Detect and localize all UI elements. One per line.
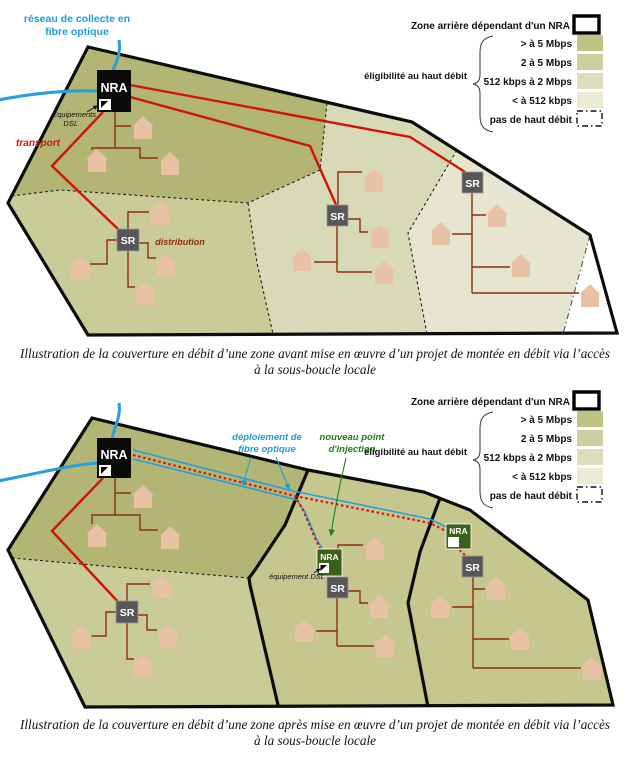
legend-swatch-lt512 <box>577 92 603 108</box>
svg-text:Zone arrière dépendant d'un NR: Zone arrière dépendant d'un NRA <box>411 397 570 408</box>
svg-text:NRA: NRA <box>449 526 467 536</box>
legend2-zone-icon <box>574 392 599 409</box>
d1-sr1-box: SR <box>117 229 139 251</box>
d2-nra-green-2: NRA <box>446 524 471 549</box>
svg-text:SR: SR <box>465 562 480 574</box>
d2-nra-box: NRA <box>97 438 131 478</box>
d2-sr2-box: SR <box>327 577 348 598</box>
d2-fiber-deploy-label: déploiement de <box>232 432 302 443</box>
legend-zone-label: Zone arrière dépendant d'un NRA <box>411 21 570 32</box>
d1-distribution-label: distribution <box>155 237 205 247</box>
d2-sr1-box: SR <box>116 601 138 623</box>
svg-text:< à 512 kbps: < à 512 kbps <box>512 472 572 483</box>
svg-text:SR: SR <box>465 178 480 190</box>
d2-zone-nra-lower <box>12 558 278 707</box>
svg-text:SR: SR <box>120 607 135 619</box>
svg-text:< à 512 kbps: < à 512 kbps <box>512 96 572 107</box>
d1-fiber-collect-label: réseau de collecte en <box>24 13 130 25</box>
svg-text:> à 5 Mbps: > à 5 Mbps <box>521 39 573 50</box>
svg-text:fibre optique: fibre optique <box>238 444 296 455</box>
svg-text:2 à 5 Mbps: 2 à 5 Mbps <box>521 58 573 69</box>
svg-text:512 kbps à 2 Mbps: 512 kbps à 2 Mbps <box>484 77 573 88</box>
svg-text:pas de haut débit: pas de haut débit <box>490 115 573 126</box>
svg-text:fibre optique: fibre optique <box>45 26 109 38</box>
svg-text:NRA: NRA <box>100 448 127 462</box>
legend-swatch-512k2m <box>577 73 603 89</box>
legend-zone-icon <box>574 16 599 33</box>
diagram-canvas: NRA SR SR SR réseau de collecte en fibre… <box>0 0 630 758</box>
d2-dsl-equipment-label: équipement DSL <box>269 572 325 581</box>
svg-text:éligibilité au haut débit: éligibilité au haut débit <box>364 447 468 458</box>
legend2-swatch-lt512 <box>577 468 603 484</box>
d1-transport-label: transport <box>16 138 61 149</box>
d1-sr2-box: SR <box>327 205 348 226</box>
diagram2-map: NRA NRA NRA SR SR SR déploiement de <box>0 403 613 707</box>
d1-sr3-box: SR <box>462 172 483 193</box>
svg-text:> à 5 Mbps: > à 5 Mbps <box>521 415 573 426</box>
legend-swatch-gt5 <box>577 35 603 51</box>
svg-text:512 kbps à 2 Mbps: 512 kbps à 2 Mbps <box>484 453 573 464</box>
d1-dsl-equipment-label: Equipements <box>52 110 96 119</box>
svg-text:SR: SR <box>330 211 345 223</box>
legend-swatch-none <box>577 111 602 126</box>
legend-1: Zone arrière dépendant d'un NRA éligibil… <box>364 16 603 132</box>
d1-nra-box: NRA <box>97 70 131 112</box>
legend-swatch-2a5 <box>577 54 603 70</box>
legend2-swatch-none <box>577 487 602 502</box>
svg-text:DSL: DSL <box>63 119 78 128</box>
svg-text:NRA: NRA <box>320 552 338 562</box>
legend2-swatch-2a5 <box>577 430 603 446</box>
legend2-swatch-gt5 <box>577 411 603 427</box>
svg-text:SR: SR <box>121 235 136 247</box>
d1-zone-gt5mbps <box>11 47 327 203</box>
legend-eligibility-label: éligibilité au haut débit <box>364 71 468 82</box>
diagram1-caption: Illustration de la couverture en débit d… <box>0 346 630 378</box>
d1-nra-label: NRA <box>100 81 127 95</box>
svg-text:pas de haut débit: pas de haut débit <box>490 491 573 502</box>
d2-sr3-box: SR <box>462 556 483 577</box>
svg-text:SR: SR <box>330 583 345 595</box>
svg-text:2 à 5 Mbps: 2 à 5 Mbps <box>521 434 573 445</box>
page: NRA SR SR SR réseau de collecte en fibre… <box>0 0 630 758</box>
d2-new-injection-label: nouveau point <box>320 432 386 443</box>
legend2-swatch-512k2m <box>577 449 603 465</box>
d2-dsl-equipment-icon <box>99 465 111 476</box>
diagram2-caption: Illustration de la couverture en débit d… <box>0 717 630 749</box>
d1-dsl-equipment-icon <box>99 99 111 110</box>
